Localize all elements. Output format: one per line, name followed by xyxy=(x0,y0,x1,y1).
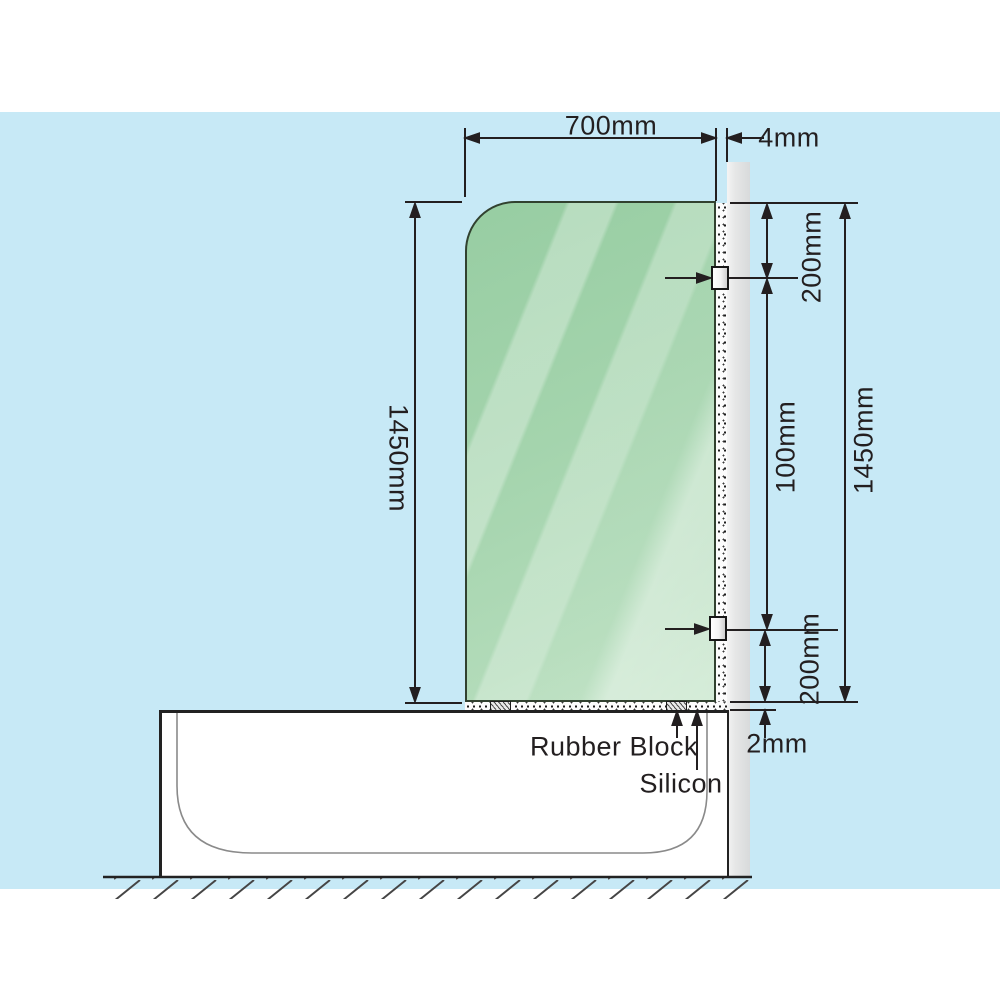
rubber-block-label: Rubber Block xyxy=(530,734,698,761)
glass-height-right-label: 1450mm xyxy=(851,386,878,494)
glass-height-left-label: 1450mm xyxy=(385,404,412,512)
bracket-mid-offset-label: 100mm xyxy=(773,401,800,494)
wall-gap-label: 4mm xyxy=(758,125,820,152)
dimension-linework xyxy=(0,0,1000,1000)
installation-diagram: 700mm 4mm 1450mm 200mm 100mm 1450mm 200m… xyxy=(0,0,1000,1000)
silicon-label: Silicon xyxy=(639,771,722,798)
leader-arrows xyxy=(665,274,710,771)
ground-hatching xyxy=(106,878,752,899)
bracket-top-offset-label: 200mm xyxy=(799,211,826,304)
bracket-bottom-offset-label: 200mm xyxy=(797,613,824,706)
glass-width-label: 700mm xyxy=(565,113,658,140)
base-gap-label: 2mm xyxy=(746,731,808,758)
